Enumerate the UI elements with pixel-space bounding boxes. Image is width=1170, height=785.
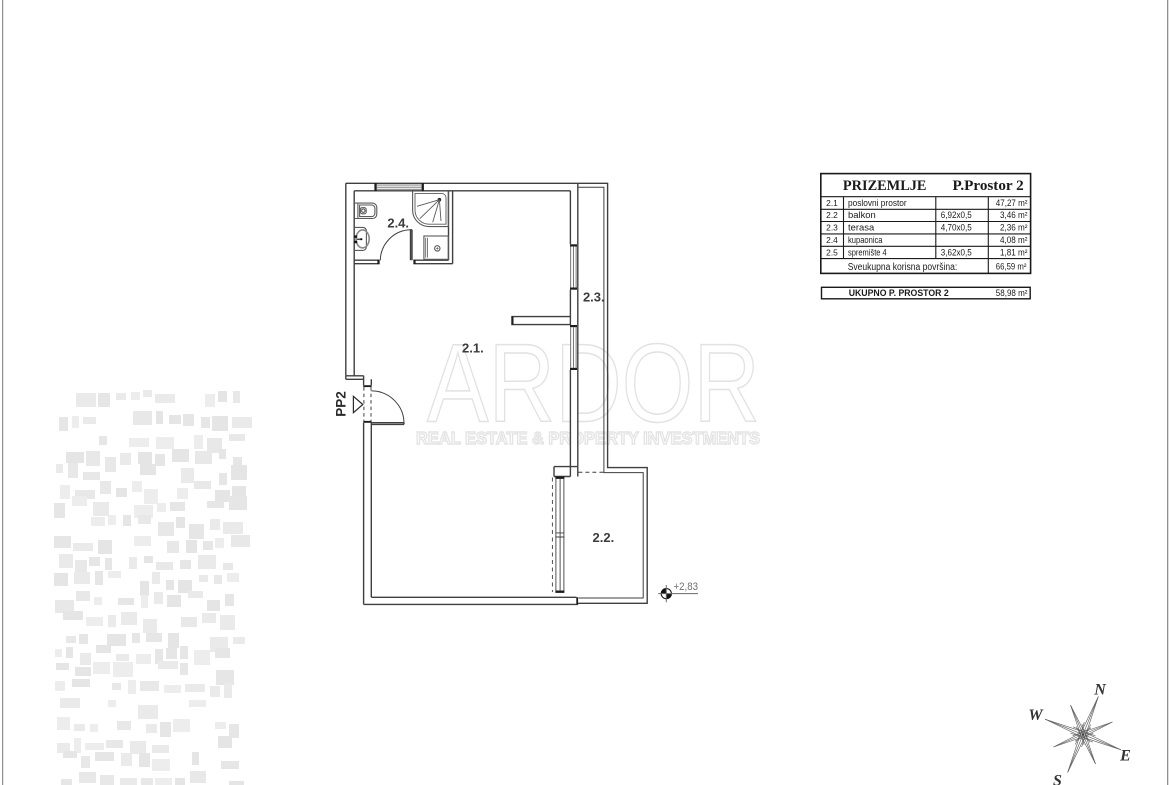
svg-text:2.3: 2.3: [826, 223, 838, 233]
svg-text:2.1.: 2.1.: [462, 341, 484, 356]
svg-text:kupaonica: kupaonica: [848, 235, 883, 245]
svg-text:PP2: PP2: [334, 391, 349, 417]
svg-text:2,36 m²: 2,36 m²: [1000, 223, 1028, 233]
svg-text:66,59 m²: 66,59 m²: [996, 261, 1027, 271]
svg-text:P.Prostor 2: P.Prostor 2: [953, 177, 1024, 194]
svg-text:N: N: [1093, 682, 1107, 699]
svg-text:PRIZEMLJE: PRIZEMLJE: [843, 177, 927, 194]
svg-text:58,98 m²: 58,98 m²: [996, 288, 1028, 298]
svg-text:1,81 m²: 1,81 m²: [1000, 247, 1028, 257]
svg-text:2.1: 2.1: [826, 198, 838, 208]
svg-text:W: W: [1028, 707, 1044, 724]
svg-text:2.4: 2.4: [826, 235, 838, 245]
svg-text:REAL ESTATE & PROPERTY INVESTM: REAL ESTATE & PROPERTY INVESTMENTS: [416, 428, 760, 448]
svg-text:2.5: 2.5: [826, 247, 838, 257]
svg-text:balkon: balkon: [848, 210, 876, 220]
svg-text:6,92x0,5: 6,92x0,5: [941, 210, 972, 220]
svg-text:+2,83: +2,83: [674, 581, 699, 593]
svg-text:2.2: 2.2: [826, 210, 838, 220]
svg-text:3,62x0,5: 3,62x0,5: [941, 247, 972, 257]
svg-text:2.2.: 2.2.: [593, 530, 615, 545]
svg-text:47,27 m²: 47,27 m²: [996, 198, 1028, 208]
svg-text:spremište 4: spremište 4: [848, 247, 887, 257]
svg-text:3,46 m²: 3,46 m²: [1000, 210, 1028, 220]
svg-text:S: S: [1053, 773, 1062, 785]
svg-text:Sveukupna korisna površina:: Sveukupna korisna površina:: [848, 262, 958, 273]
svg-text:4,08 m²: 4,08 m²: [1000, 235, 1028, 245]
svg-text:poslovni prostor: poslovni prostor: [848, 198, 907, 208]
svg-text:2.3.: 2.3.: [583, 290, 605, 305]
svg-text:4,70x0,5: 4,70x0,5: [941, 223, 972, 233]
svg-text:UKUPNO P. PROSTOR 2: UKUPNO P. PROSTOR 2: [849, 288, 949, 298]
svg-text:2.4.: 2.4.: [387, 216, 409, 231]
svg-text:E: E: [1119, 748, 1131, 765]
svg-text:terasa: terasa: [848, 223, 874, 233]
